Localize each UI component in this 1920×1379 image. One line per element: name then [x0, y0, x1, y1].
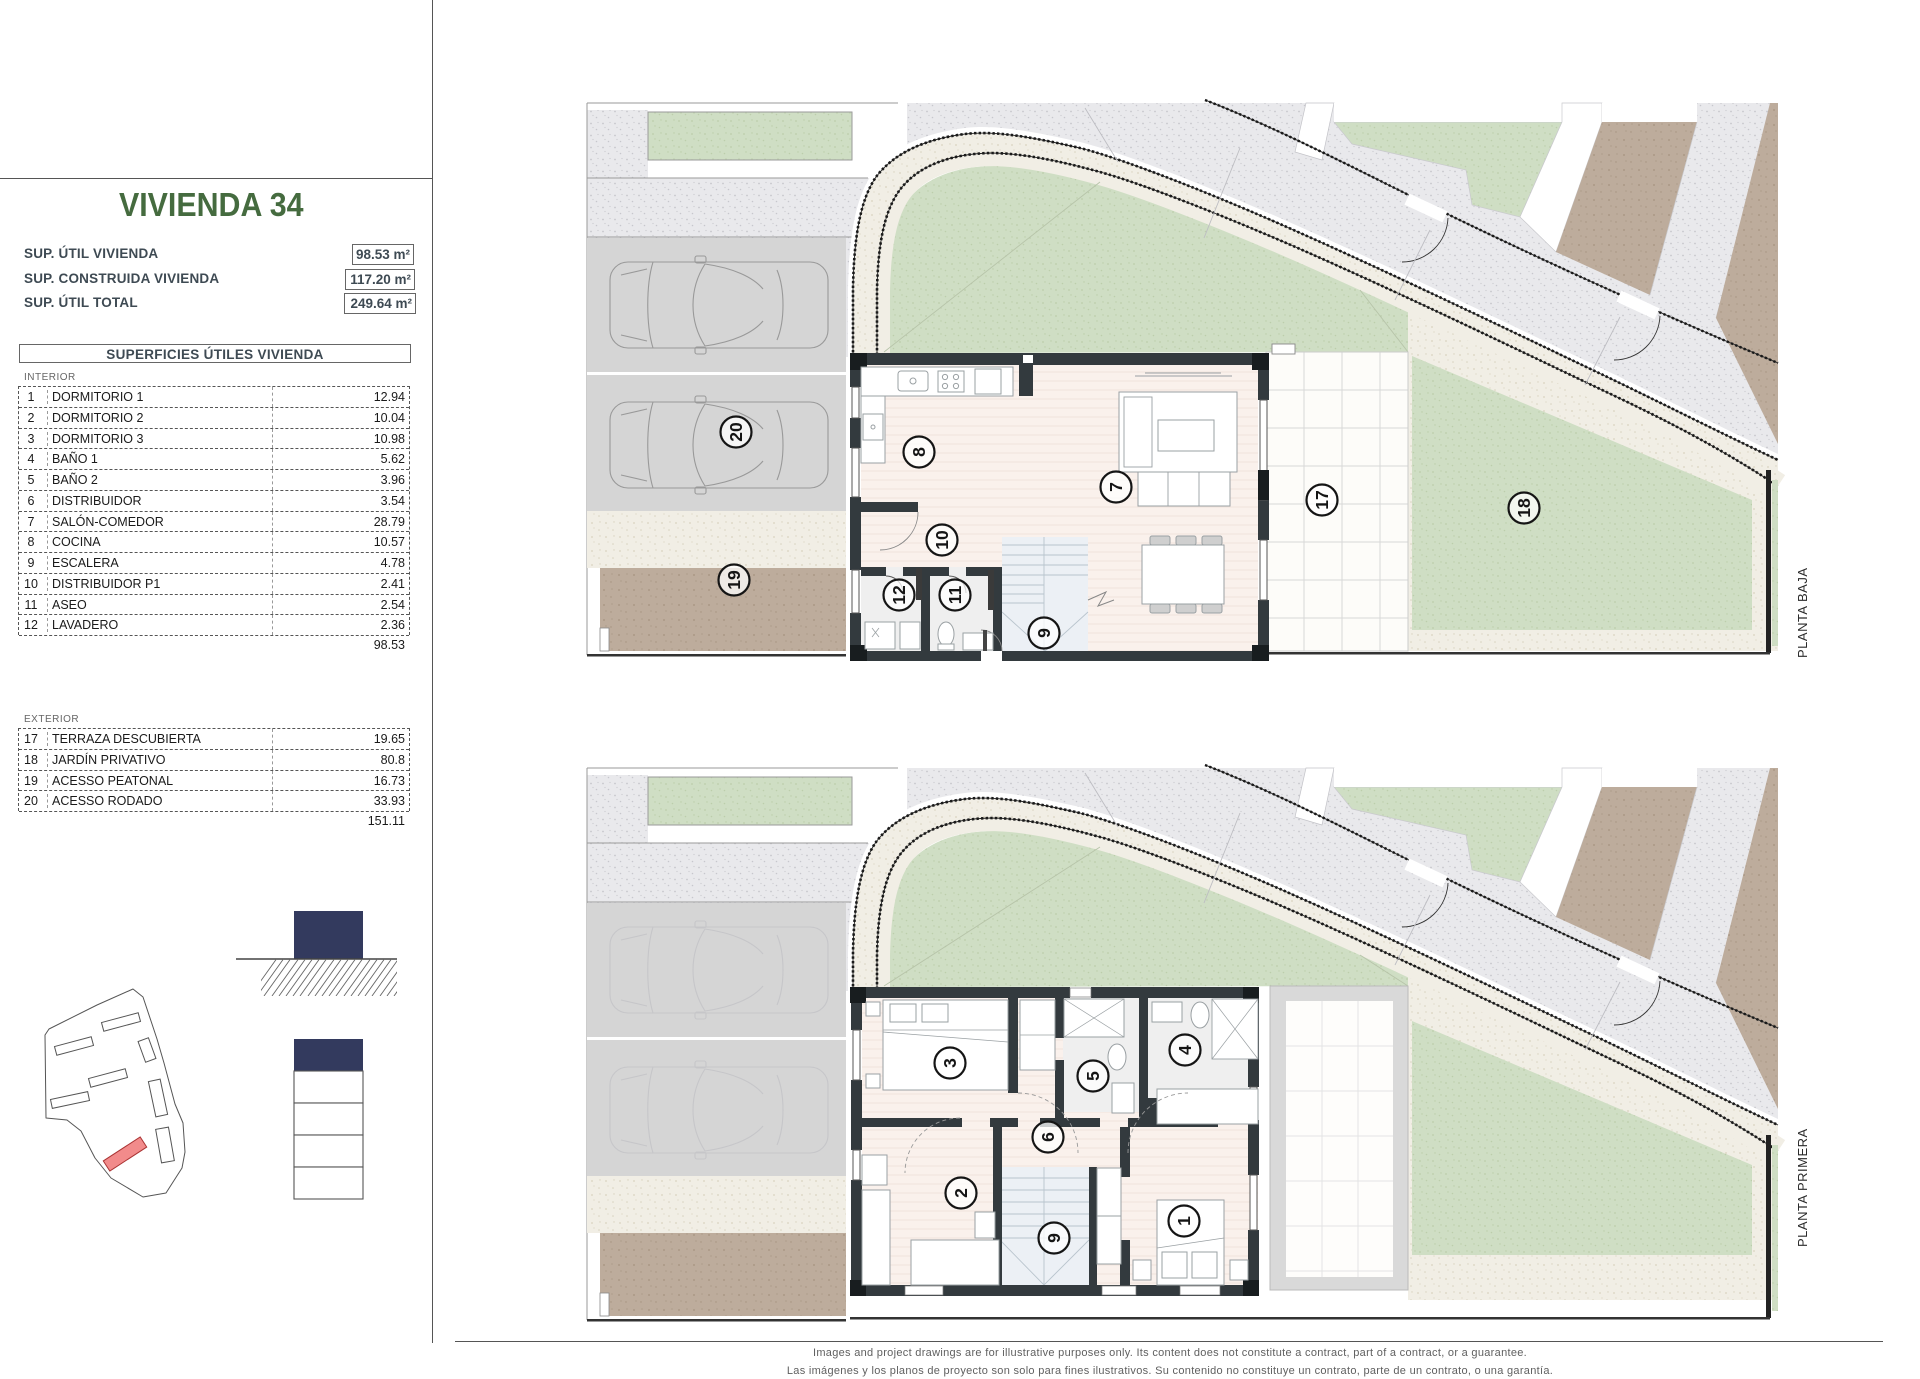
svg-text:5: 5 [1083, 1071, 1103, 1081]
svg-text:6: 6 [1038, 1132, 1058, 1142]
svg-text:10: 10 [932, 530, 952, 550]
svg-text:9: 9 [1044, 1233, 1064, 1243]
svg-text:12: 12 [889, 585, 909, 605]
svg-text:17: 17 [1312, 490, 1332, 509]
svg-text:7: 7 [1106, 482, 1126, 492]
svg-text:1: 1 [1174, 1216, 1194, 1226]
svg-text:20: 20 [726, 422, 746, 442]
svg-text:4: 4 [1175, 1045, 1195, 1055]
svg-text:18: 18 [1514, 498, 1534, 518]
svg-text:11: 11 [945, 585, 965, 604]
svg-text:9: 9 [1034, 628, 1054, 638]
svg-text:19: 19 [724, 570, 744, 590]
svg-text:3: 3 [940, 1058, 960, 1068]
svg-text:2: 2 [951, 1188, 971, 1198]
svg-text:8: 8 [909, 447, 929, 457]
